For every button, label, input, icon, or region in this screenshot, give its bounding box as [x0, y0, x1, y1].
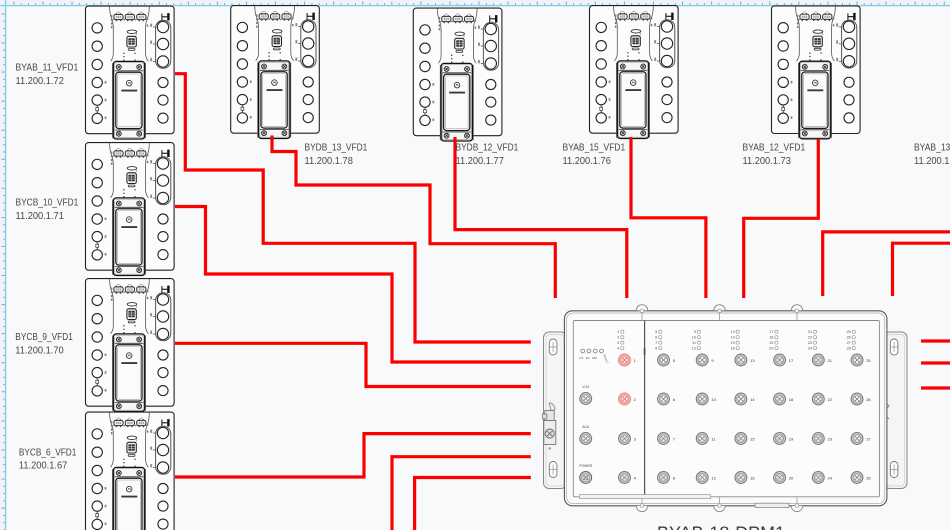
svg-text:28: 28 — [847, 347, 851, 351]
svg-text:20: 20 — [789, 475, 794, 480]
svg-text:12: 12 — [711, 475, 716, 480]
svg-text:25: 25 — [847, 330, 851, 334]
svg-text:24: 24 — [808, 347, 812, 351]
svg-text:11.200.1.73: 11.200.1.73 — [743, 156, 792, 167]
svg-text:13: 13 — [730, 330, 734, 334]
svg-text:11.200.1.72: 11.200.1.72 — [16, 76, 65, 87]
svg-text:BYAB_11_VFD1: BYAB_11_VFD1 — [16, 62, 79, 73]
svg-text:27: 27 — [847, 341, 851, 345]
svg-text:19: 19 — [789, 436, 794, 441]
svg-text:BYAB_15_VFD1: BYAB_15_VFD1 — [563, 143, 626, 154]
svg-text:9: 9 — [694, 330, 696, 334]
svg-text:26: 26 — [866, 397, 871, 402]
svg-text:11.200.1.77: 11.200.1.77 — [456, 156, 505, 167]
svg-text:BYDB_13_VFD1: BYDB_13_VFD1 — [305, 143, 368, 154]
svg-text:11.200.1.74: 11.200.1.74 — [914, 156, 950, 167]
svg-text:17: 17 — [789, 358, 794, 363]
svg-text:BYAB_13_VFD1: BYAB_13_VFD1 — [914, 143, 950, 154]
svg-text:25: 25 — [866, 358, 871, 363]
svg-text:POWER: POWER — [579, 464, 592, 468]
svg-text:21: 21 — [808, 330, 812, 334]
svg-text:3: 3 — [617, 341, 619, 345]
svg-text:11: 11 — [692, 341, 696, 345]
svg-text:P2: P2 — [586, 356, 590, 360]
svg-text:BYAB_12_VFD1: BYAB_12_VFD1 — [743, 143, 806, 154]
svg-text:20: 20 — [769, 347, 773, 351]
svg-text:18: 18 — [769, 336, 773, 340]
svg-text:1: 1 — [617, 330, 619, 334]
svg-text:26: 26 — [847, 336, 851, 340]
svg-text:13: 13 — [750, 358, 755, 363]
svg-text:10: 10 — [711, 397, 716, 402]
svg-text:15: 15 — [750, 436, 755, 441]
svg-text:11.200.1.78: 11.200.1.78 — [305, 156, 354, 167]
svg-text:14: 14 — [730, 336, 734, 340]
svg-text:17: 17 — [769, 330, 773, 334]
svg-text:BYDB_12_VFD1: BYDB_12_VFD1 — [456, 143, 519, 154]
svg-text:22: 22 — [808, 336, 812, 340]
svg-text:15: 15 — [730, 341, 734, 345]
svg-text:BYCB_6_VFD1: BYCB_6_VFD1 — [19, 447, 77, 458]
svg-text:4: 4 — [617, 347, 619, 351]
svg-text:16: 16 — [750, 475, 755, 480]
svg-text:14: 14 — [750, 397, 755, 402]
svg-text:18: 18 — [789, 397, 794, 402]
svg-text:2: 2 — [617, 336, 619, 340]
svg-text:P1: P1 — [580, 356, 584, 360]
svg-text:28: 28 — [866, 475, 871, 480]
svg-text:23: 23 — [828, 436, 833, 441]
svg-text:12: 12 — [692, 347, 696, 351]
svg-text:BYCB_9_VFD1: BYCB_9_VFD1 — [15, 332, 73, 343]
svg-text:10: 10 — [692, 336, 696, 340]
svg-text:6: 6 — [655, 336, 657, 340]
svg-text:ACA: ACA — [582, 425, 590, 429]
svg-text:23: 23 — [808, 341, 812, 345]
svg-text:BYCB_10_VFD1: BYCB_10_VFD1 — [16, 197, 79, 208]
svg-text:8: 8 — [655, 347, 657, 351]
svg-text:7: 7 — [655, 341, 657, 345]
svg-text:16: 16 — [730, 347, 734, 351]
svg-text:11.200.1.71: 11.200.1.71 — [16, 211, 65, 222]
svg-text:19: 19 — [769, 341, 773, 345]
svg-text:21: 21 — [828, 358, 833, 363]
svg-text:RM: RM — [592, 356, 597, 360]
svg-text:22: 22 — [828, 397, 833, 402]
svg-text:V.24: V.24 — [582, 385, 589, 389]
svg-text:BYAB-18-DPM1: BYAB-18-DPM1 — [657, 522, 785, 530]
svg-text:5: 5 — [655, 330, 657, 334]
svg-text:11.200.1.67: 11.200.1.67 — [19, 461, 68, 472]
svg-text:27: 27 — [866, 436, 871, 441]
svg-text:11.200.1.70: 11.200.1.70 — [15, 346, 64, 357]
svg-text:11.200.1.76: 11.200.1.76 — [563, 156, 612, 167]
svg-text:24: 24 — [828, 475, 833, 480]
